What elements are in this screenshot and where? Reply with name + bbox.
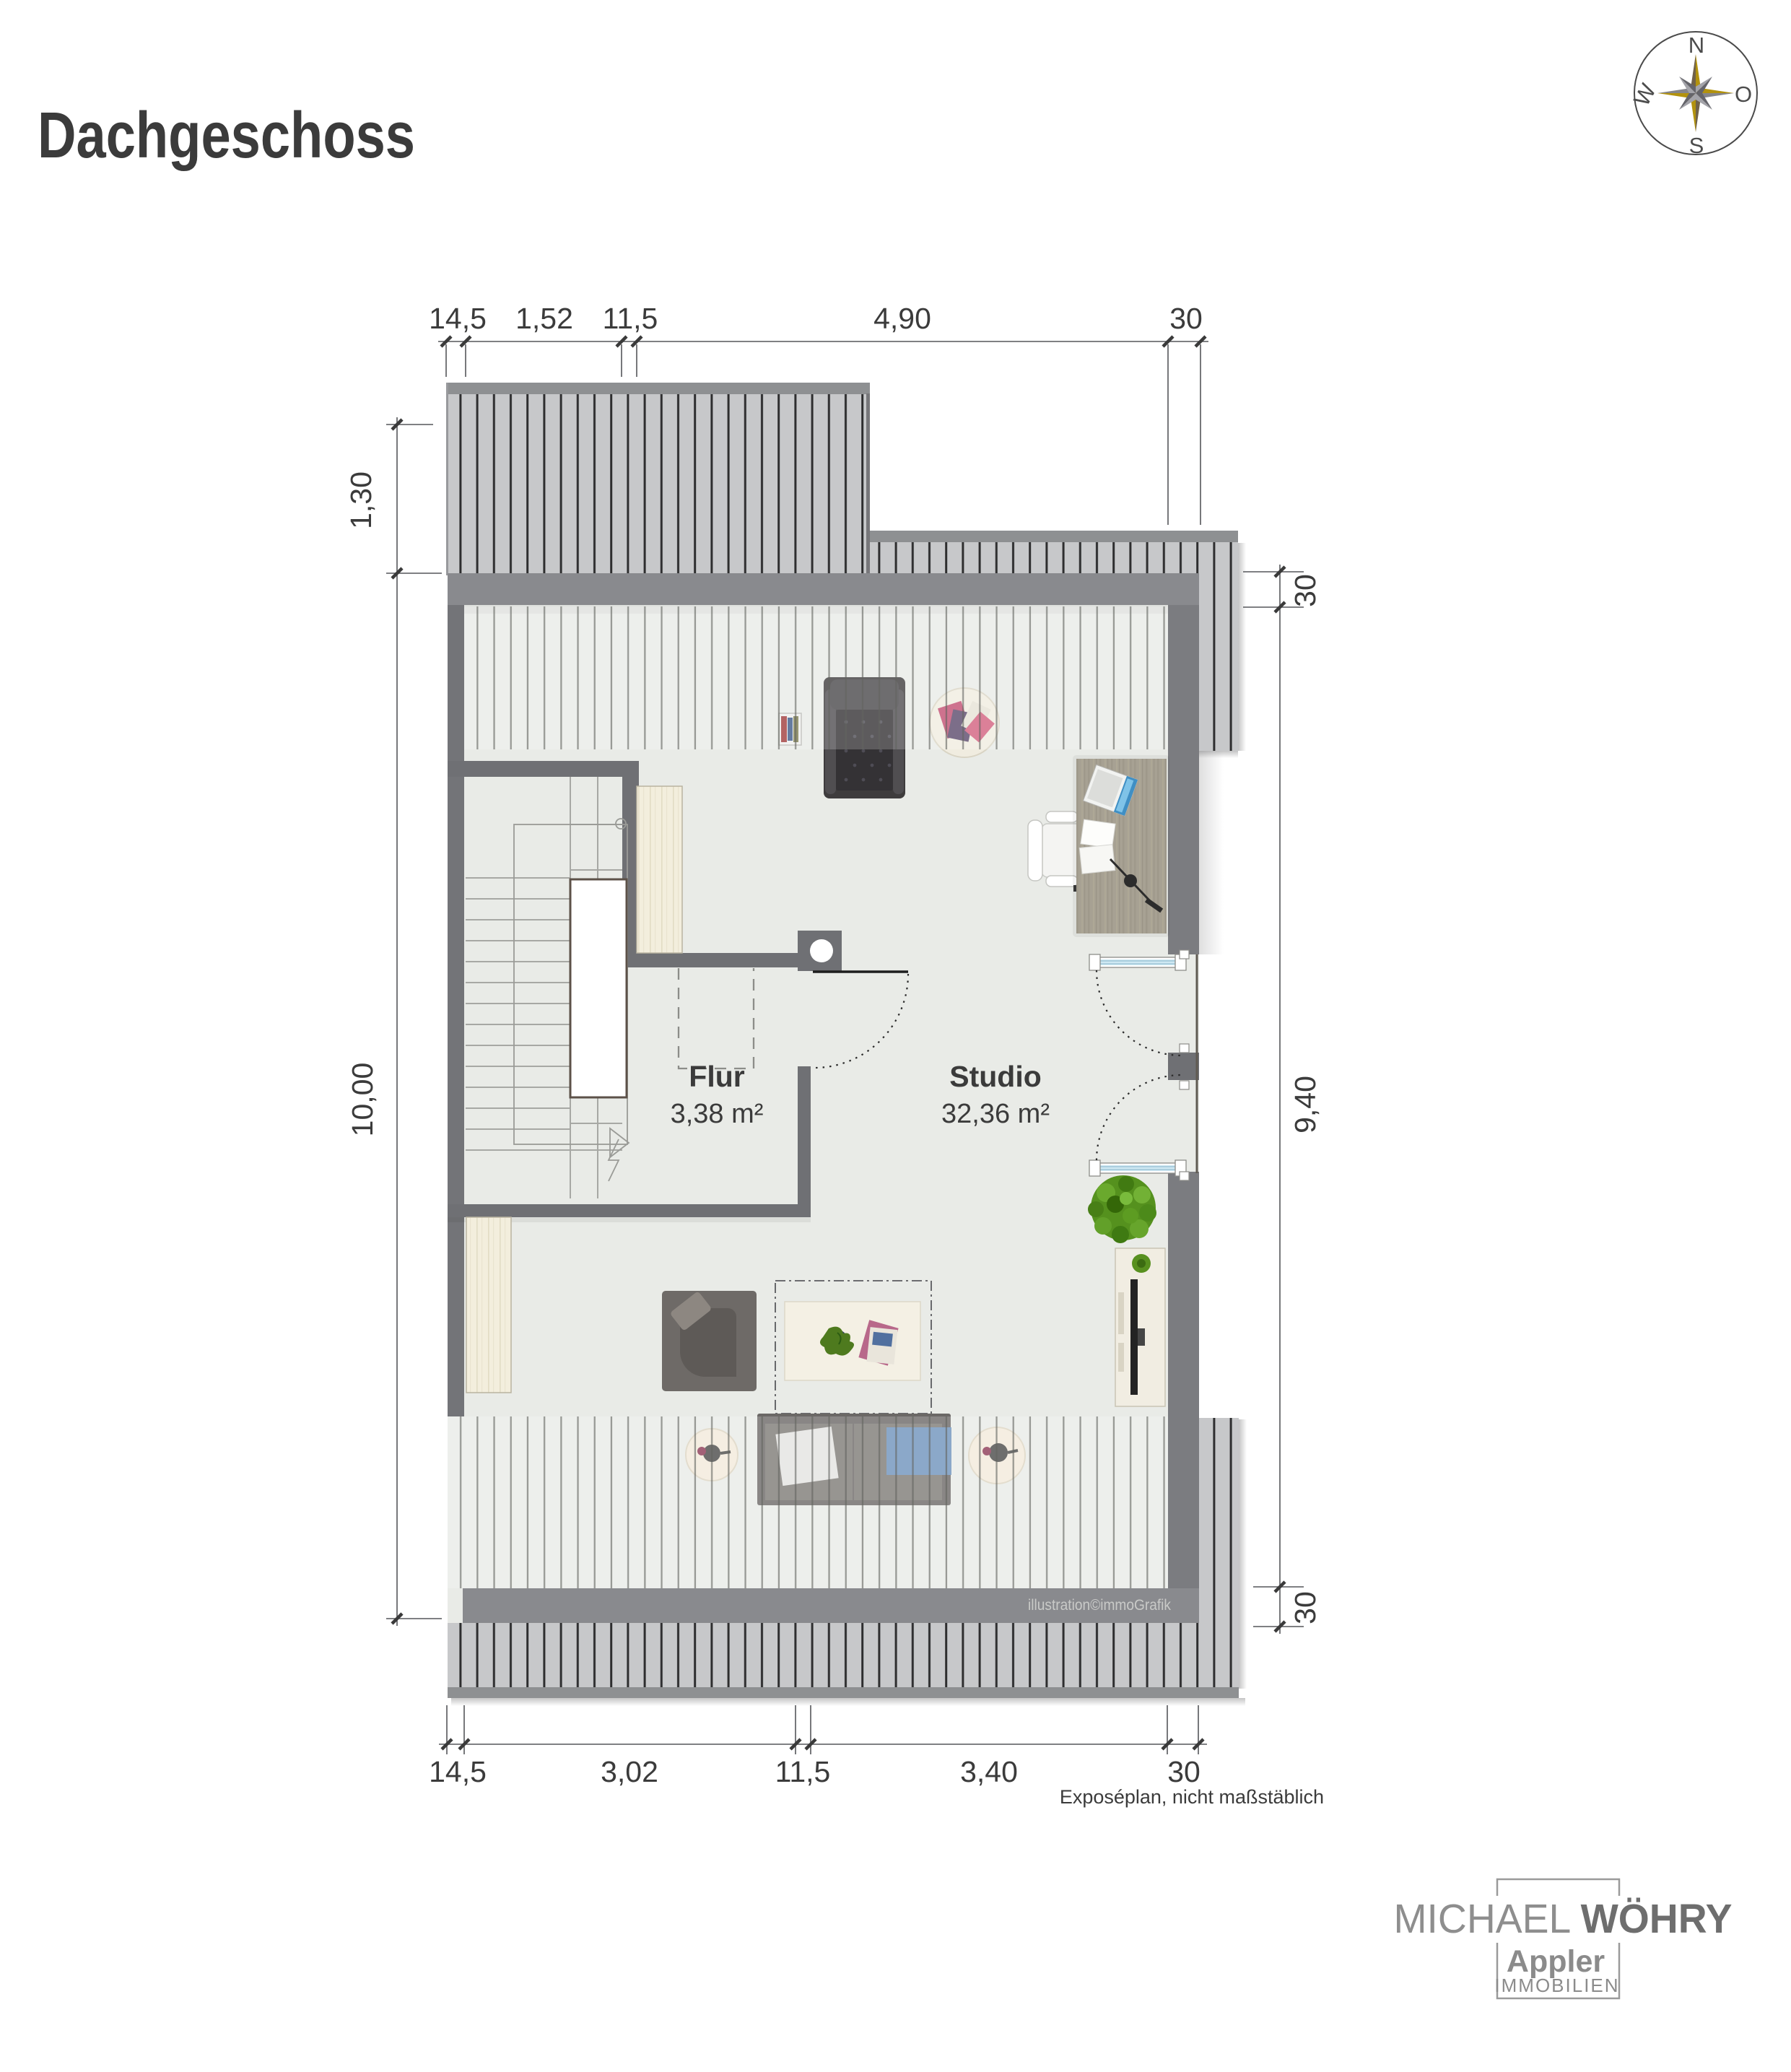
svg-text:1,30: 1,30 bbox=[344, 471, 378, 529]
svg-text:O: O bbox=[1735, 82, 1752, 107]
svg-text:30: 30 bbox=[1169, 302, 1203, 335]
svg-text:Appler: Appler bbox=[1507, 1944, 1605, 1979]
svg-text:Flur: Flur bbox=[689, 1060, 744, 1093]
svg-text:IMMOBILIEN: IMMOBILIEN bbox=[1494, 1975, 1619, 1996]
svg-text:30: 30 bbox=[1289, 574, 1322, 607]
svg-text:S: S bbox=[1689, 133, 1704, 158]
svg-text:11,5: 11,5 bbox=[775, 1755, 831, 1788]
svg-text:N: N bbox=[1688, 32, 1704, 58]
svg-text:Studio: Studio bbox=[949, 1060, 1042, 1093]
svg-text:Dachgeschoss: Dachgeschoss bbox=[38, 100, 415, 172]
svg-text:30: 30 bbox=[1289, 1591, 1322, 1624]
svg-text:30: 30 bbox=[1167, 1755, 1200, 1788]
svg-text:14,5: 14,5 bbox=[429, 1755, 487, 1788]
svg-text:3,02: 3,02 bbox=[601, 1755, 658, 1788]
svg-text:11,5: 11,5 bbox=[603, 302, 658, 335]
svg-text:1,52: 1,52 bbox=[515, 302, 573, 335]
svg-text:MICHAEL WÖHRY: MICHAEL WÖHRY bbox=[1394, 1896, 1733, 1942]
svg-text:3,40: 3,40 bbox=[960, 1755, 1018, 1788]
svg-text:4,90: 4,90 bbox=[873, 302, 931, 335]
svg-text:14,5: 14,5 bbox=[429, 302, 487, 335]
svg-text:Exposéplan, nicht maßstäblich: Exposéplan, nicht maßstäblich bbox=[1060, 1786, 1324, 1808]
svg-text:3,38 m²: 3,38 m² bbox=[671, 1099, 764, 1129]
svg-text:9,40: 9,40 bbox=[1289, 1076, 1322, 1133]
svg-text:illustration©immoGrafik: illustration©immoGrafik bbox=[1028, 1597, 1171, 1614]
svg-text:32,36 m²: 32,36 m² bbox=[941, 1099, 1050, 1129]
svg-text:10,00: 10,00 bbox=[346, 1063, 379, 1137]
